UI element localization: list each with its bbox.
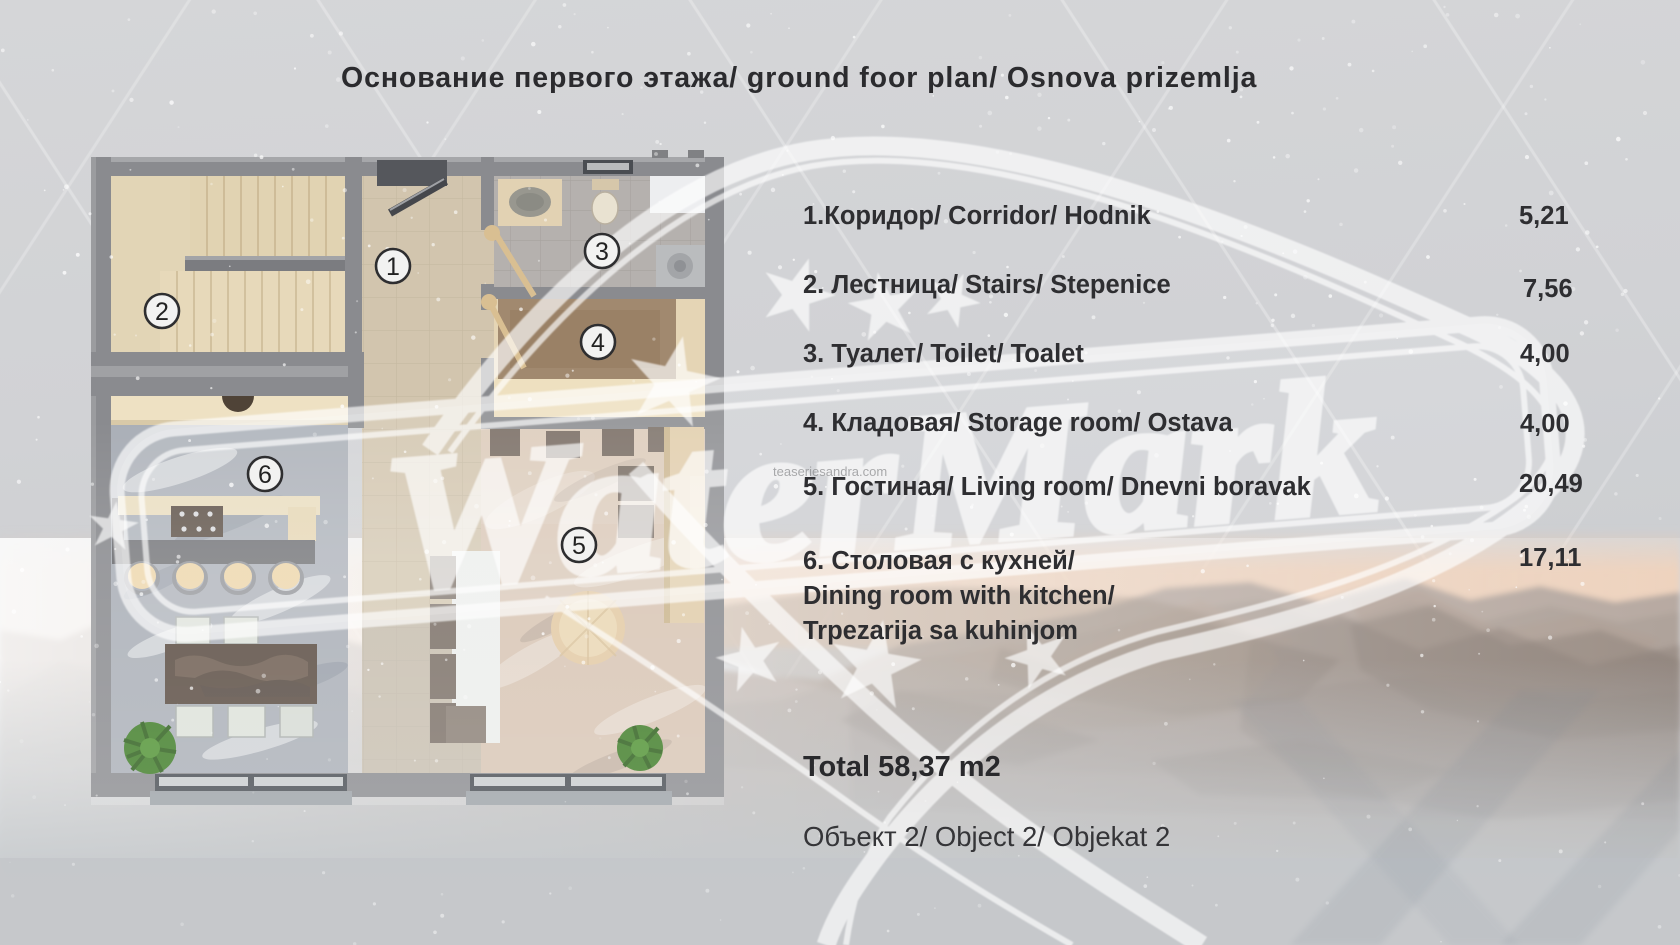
svg-text:2: 2: [155, 298, 169, 326]
svg-text:3: 3: [595, 238, 609, 266]
svg-text:1: 1: [386, 253, 400, 281]
svg-text:5: 5: [572, 532, 586, 560]
svg-text:6: 6: [258, 461, 272, 489]
svg-text:4: 4: [591, 329, 605, 357]
